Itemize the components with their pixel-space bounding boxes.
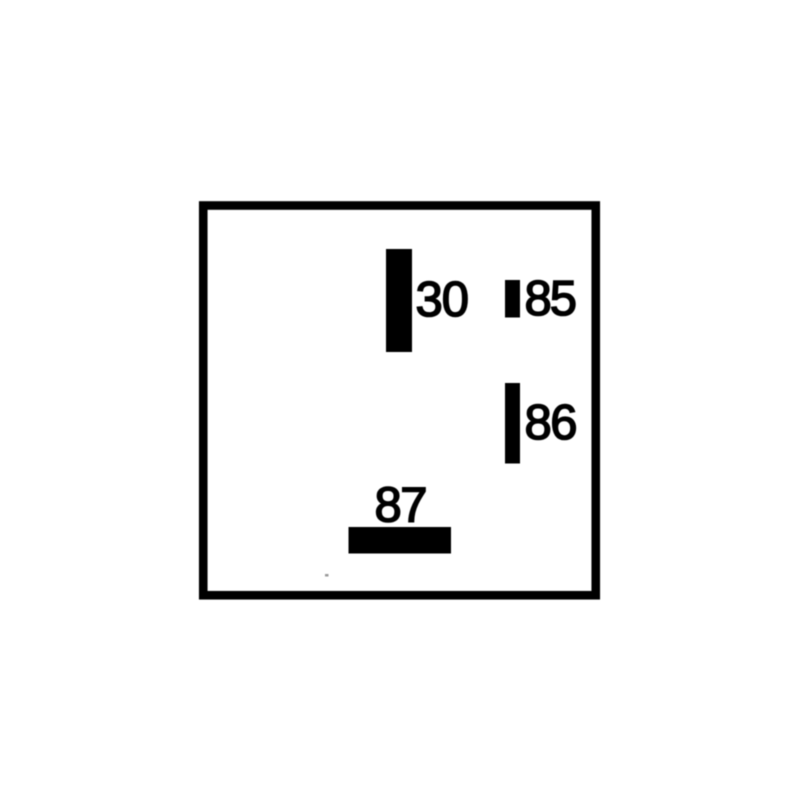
svg-text:30: 30 bbox=[416, 273, 469, 327]
svg-text:86: 86 bbox=[525, 396, 577, 450]
svg-text:87: 87 bbox=[375, 479, 427, 533]
svg-text:85: 85 bbox=[525, 272, 576, 326]
